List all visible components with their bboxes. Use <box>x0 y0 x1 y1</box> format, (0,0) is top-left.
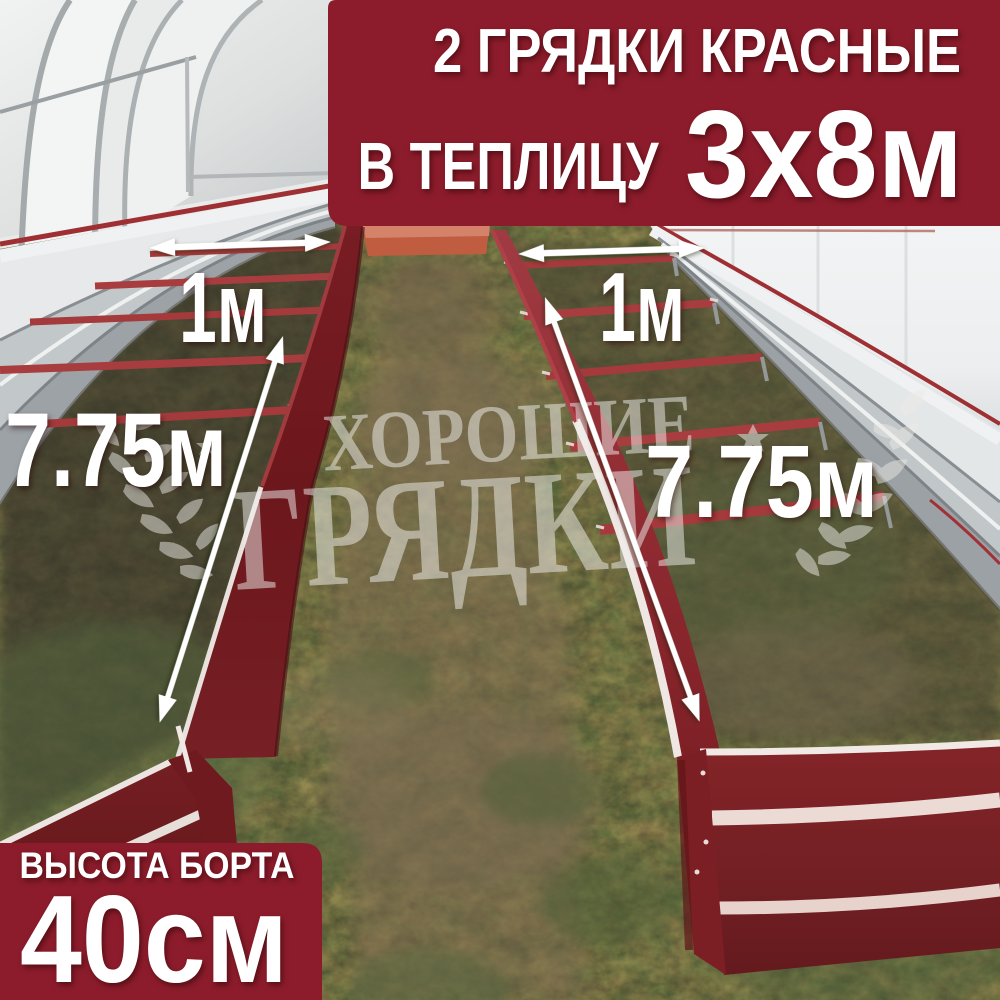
svg-text:2 ГРЯДКИ КРАСНЫЕ: 2 ГРЯДКИ КРАСНЫЕ <box>433 17 961 86</box>
svg-text:7.75м: 7.75м <box>5 392 227 509</box>
svg-text:3х8м: 3х8м <box>685 86 963 224</box>
svg-text:7.75м: 7.75м <box>645 424 878 539</box>
svg-text:В ТЕПЛИЦУ: В ТЕПЛИЦУ <box>358 129 660 204</box>
svg-text:1м: 1м <box>179 252 267 364</box>
svg-text:1м: 1м <box>599 252 685 362</box>
svg-text:40см: 40см <box>20 871 288 1000</box>
